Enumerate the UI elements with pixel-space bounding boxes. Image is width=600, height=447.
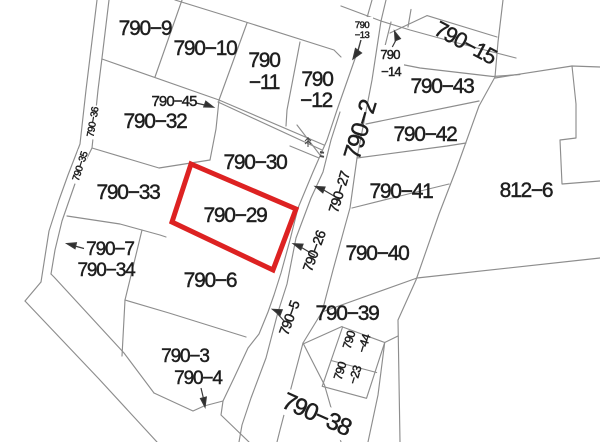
svg-text:790−3: 790−3: [161, 346, 209, 367]
svg-text:−13: −13: [355, 30, 370, 41]
svg-text:−12: −12: [300, 89, 332, 112]
svg-text:790−34: 790−34: [77, 260, 136, 281]
svg-text:790: 790: [380, 47, 400, 62]
svg-text:790−9: 790−9: [119, 17, 172, 40]
svg-text:790−29: 790−29: [203, 204, 267, 227]
svg-text:790−42: 790−42: [393, 123, 457, 146]
svg-text:790: 790: [301, 68, 333, 91]
svg-text:790−7: 790−7: [86, 239, 134, 260]
svg-text:790−30: 790−30: [223, 151, 287, 174]
svg-text:790−32: 790−32: [123, 110, 187, 133]
svg-text:790−4: 790−4: [174, 368, 223, 389]
svg-text:790−41: 790−41: [369, 180, 433, 203]
svg-text:790−6: 790−6: [184, 269, 237, 292]
svg-text:790−40: 790−40: [345, 242, 409, 265]
svg-text:790−33: 790−33: [96, 181, 160, 204]
svg-text:−11: −11: [249, 71, 280, 94]
svg-text:790: 790: [248, 49, 280, 72]
svg-text:812−6: 812−6: [500, 179, 553, 202]
svg-text:790−45: 790−45: [151, 93, 197, 110]
svg-text:790−39: 790−39: [315, 302, 379, 325]
svg-text:−14: −14: [381, 64, 401, 79]
svg-text:790−10: 790−10: [173, 37, 237, 60]
svg-text:790−43: 790−43: [410, 75, 474, 98]
